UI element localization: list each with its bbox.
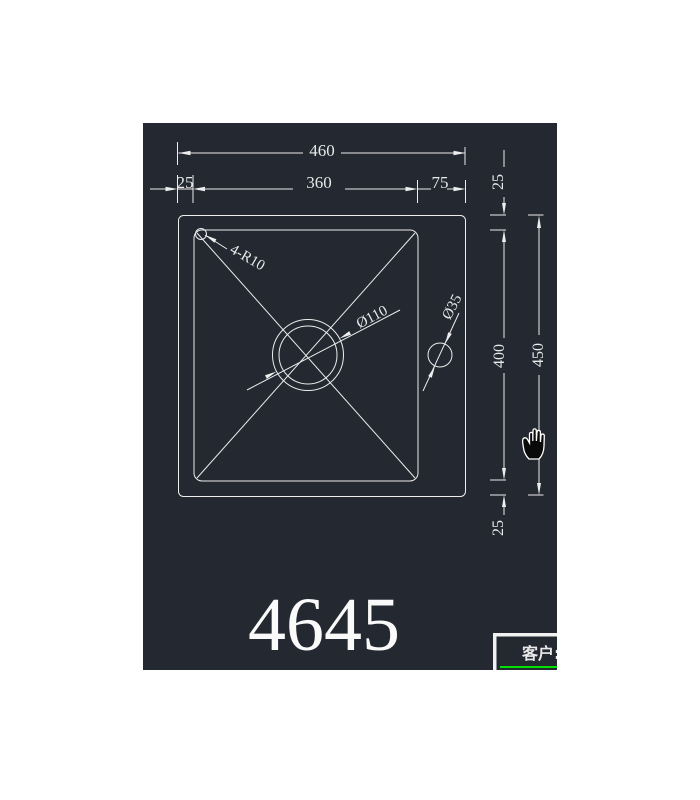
dimension-labels: 460 25 360 75 25 400 450 25 Ø110 Ø35 4-R…	[177, 141, 548, 536]
dim-bowl-width-label: 360	[306, 173, 332, 192]
sink-outline	[179, 216, 466, 497]
dimension-arrows	[166, 151, 542, 507]
title-block: 客户:	[493, 633, 557, 670]
dim-top-margin-label: 25	[490, 174, 507, 190]
drain-diameter-label: Ø110	[354, 303, 390, 332]
dim-right-margin-label: 75	[432, 173, 449, 192]
title-block-green-rule	[500, 666, 557, 668]
hole-diameter-label: Ø35	[439, 292, 465, 322]
dimension-lines	[150, 142, 544, 515]
customer-label: 客户:	[522, 644, 557, 663]
corner-radius-label: 4-R10	[227, 242, 267, 275]
drain-circle-outer	[273, 320, 344, 391]
dim-left-margin-label: 25	[177, 173, 194, 192]
dim-total-width-label: 460	[309, 141, 335, 160]
dim-total-height-label: 450	[530, 343, 547, 367]
cad-viewport-page: { "colors": { "page_bg": "#ffffff", "can…	[0, 0, 700, 800]
sink-drawing: 460 25 360 75 25 400 450 25 Ø110 Ø35 4-R…	[143, 123, 557, 670]
drain-circle-inner	[279, 326, 337, 384]
pan-hand-cursor	[523, 429, 545, 459]
dim-bottom-margin-label: 25	[490, 520, 507, 536]
pan-hand-icon	[523, 429, 545, 459]
title-block-left-border	[493, 633, 497, 670]
cad-canvas[interactable]: 460 25 360 75 25 400 450 25 Ø110 Ø35 4-R…	[143, 123, 557, 670]
model-number-label: 4645	[248, 583, 400, 667]
title-block-top-border	[493, 633, 557, 637]
sink-outer-rim	[179, 216, 466, 497]
dim-bowl-height-label: 400	[491, 344, 508, 368]
